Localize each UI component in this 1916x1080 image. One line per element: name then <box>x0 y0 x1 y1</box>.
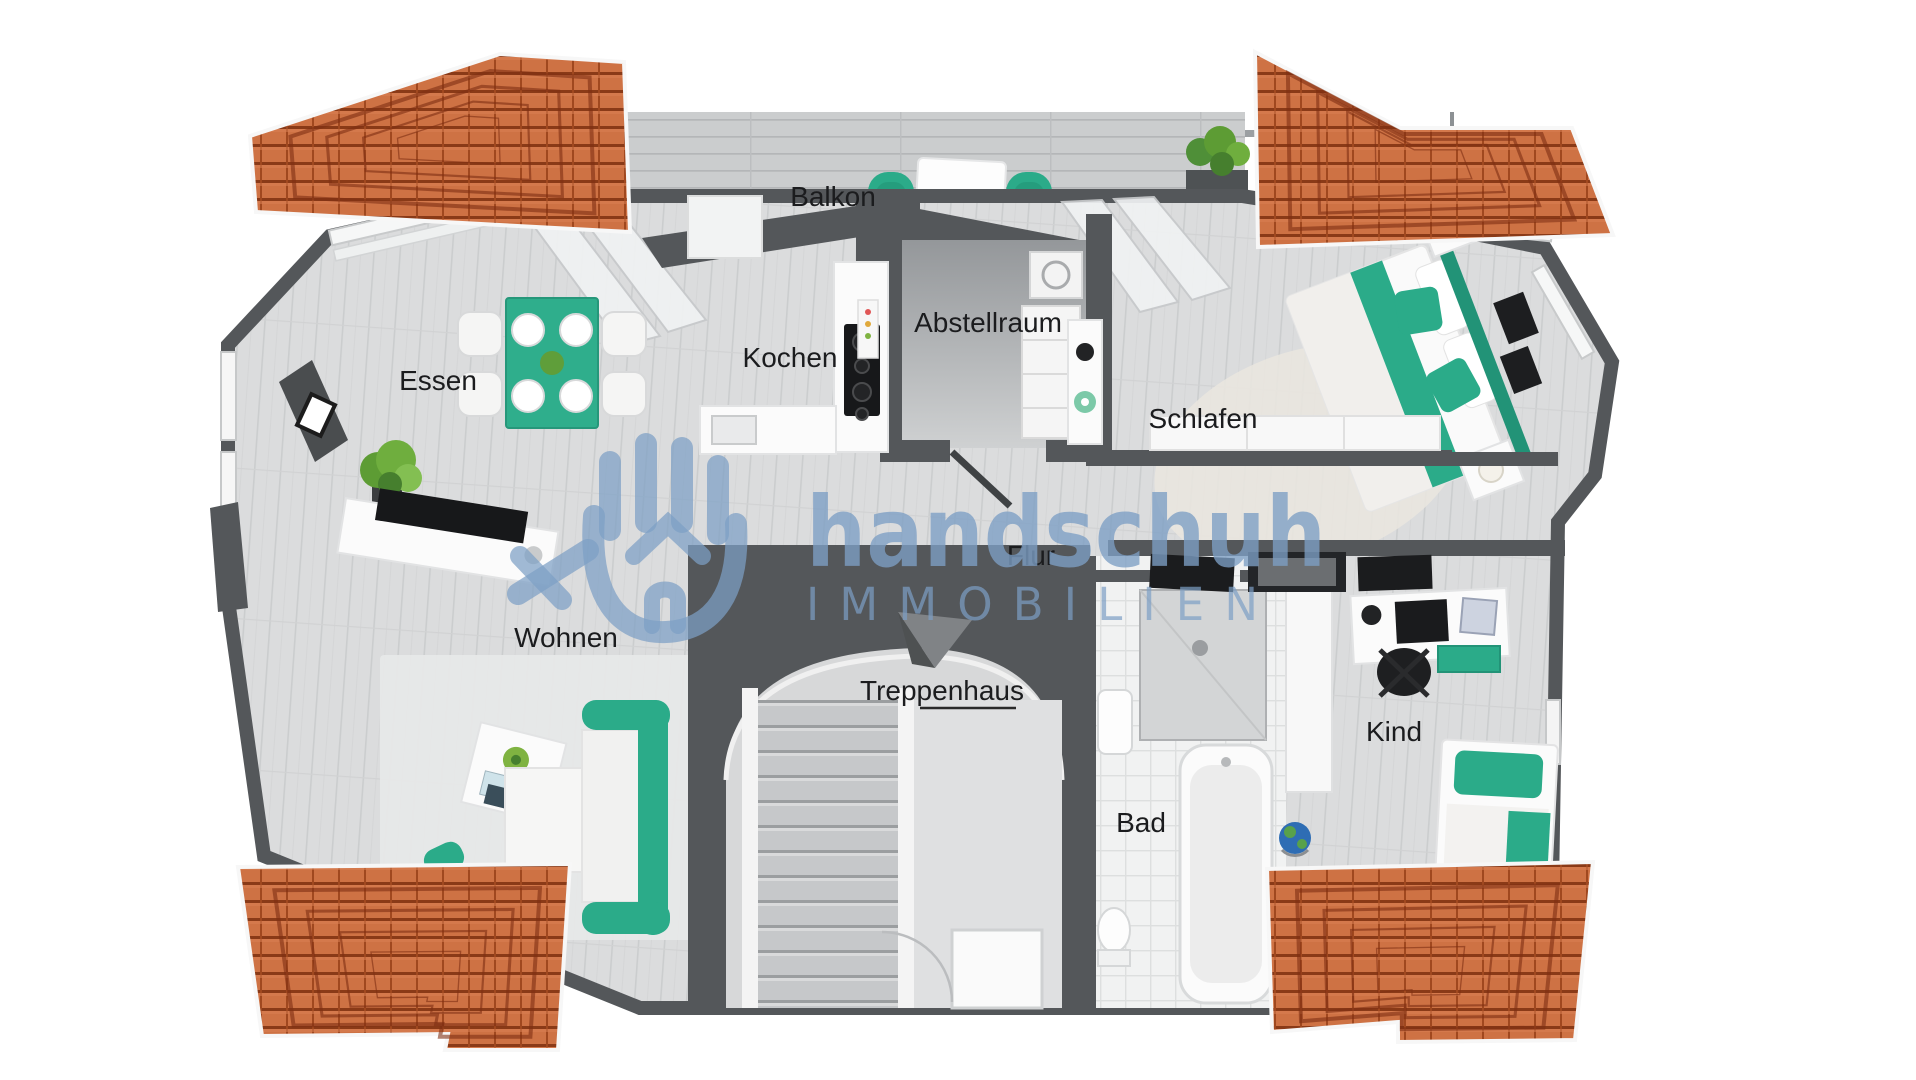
sink <box>1098 690 1132 754</box>
watermark-subtitle-text: IMMOBILIEN <box>806 578 1258 631</box>
green-drawer <box>1438 646 1500 672</box>
label-wohnen: Wohnen <box>514 622 618 653</box>
label-kochen: Kochen <box>743 342 838 373</box>
desk-picture <box>1460 598 1497 635</box>
tall-cabinet <box>1286 560 1332 792</box>
roof-bottom-right <box>1267 862 1593 1042</box>
label-abstellraum: Abstellraum <box>914 307 1062 338</box>
label-kind: Kind <box>1366 716 1422 747</box>
label-schlafen: Schlafen <box>1149 403 1258 434</box>
staircase-steps <box>758 700 898 1008</box>
console-table <box>1068 320 1102 444</box>
table-centerpiece-plant <box>540 351 564 375</box>
kitchen-sink <box>712 416 756 444</box>
toilet <box>1098 908 1130 966</box>
roof-top-left <box>250 54 630 232</box>
office-chair <box>1377 648 1431 696</box>
label-bad: Bad <box>1116 807 1166 838</box>
utensil-board <box>858 300 878 358</box>
roof-bottom-left <box>238 864 570 1050</box>
floorplan-rendering: Balkon Abstellraum Kochen Essen Schlafen… <box>0 0 1916 1080</box>
label-essen: Essen <box>399 365 477 396</box>
label-balkon: Balkon <box>790 181 876 212</box>
green-pillow <box>1393 286 1443 336</box>
monitor <box>1395 599 1449 644</box>
bathtub <box>1180 745 1272 1003</box>
entry-door <box>952 930 1042 1008</box>
wall-bad-west <box>1078 556 1096 1008</box>
kitchen-cabinet <box>688 196 762 258</box>
floorplan-page: Balkon Abstellraum Kochen Essen Schlafen… <box>0 0 1916 1080</box>
green-pillow <box>1453 750 1543 799</box>
watermark-brand-text: handschuh <box>806 476 1326 589</box>
globe <box>1279 822 1311 856</box>
label-treppenhaus: Treppenhaus <box>860 675 1024 706</box>
washing-machine <box>1030 252 1082 298</box>
roof-top-right <box>1255 52 1613 247</box>
